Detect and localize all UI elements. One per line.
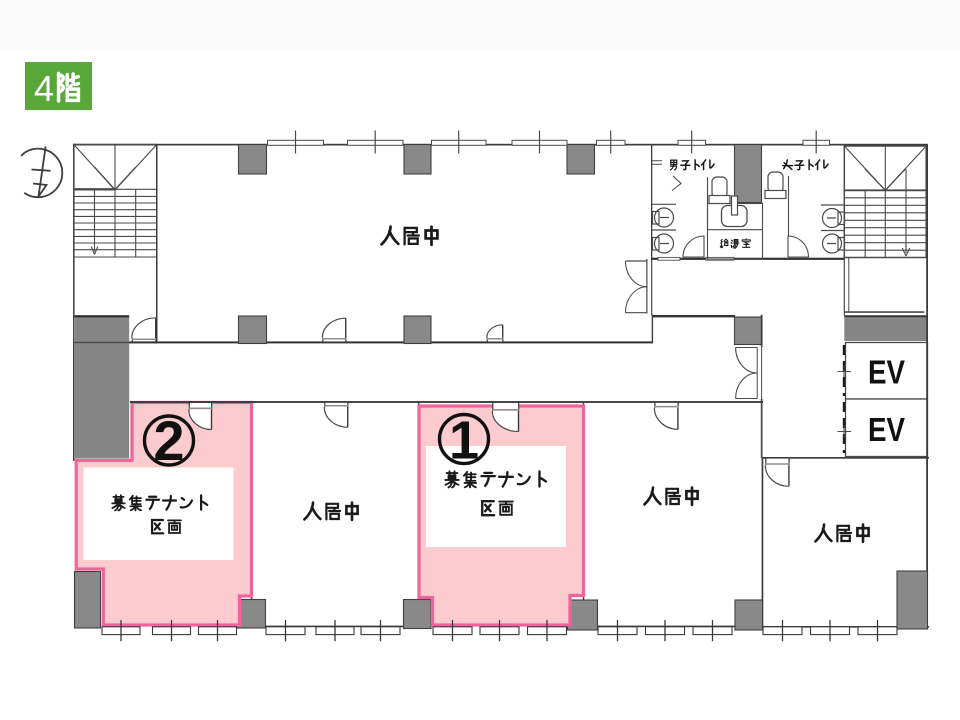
svg-text:4: 4 xyxy=(34,68,54,109)
svg-text:2: 2 xyxy=(153,409,184,472)
svg-text:EV: EV xyxy=(868,411,905,448)
svg-text:1: 1 xyxy=(449,411,479,471)
svg-text:EV: EV xyxy=(868,354,905,391)
